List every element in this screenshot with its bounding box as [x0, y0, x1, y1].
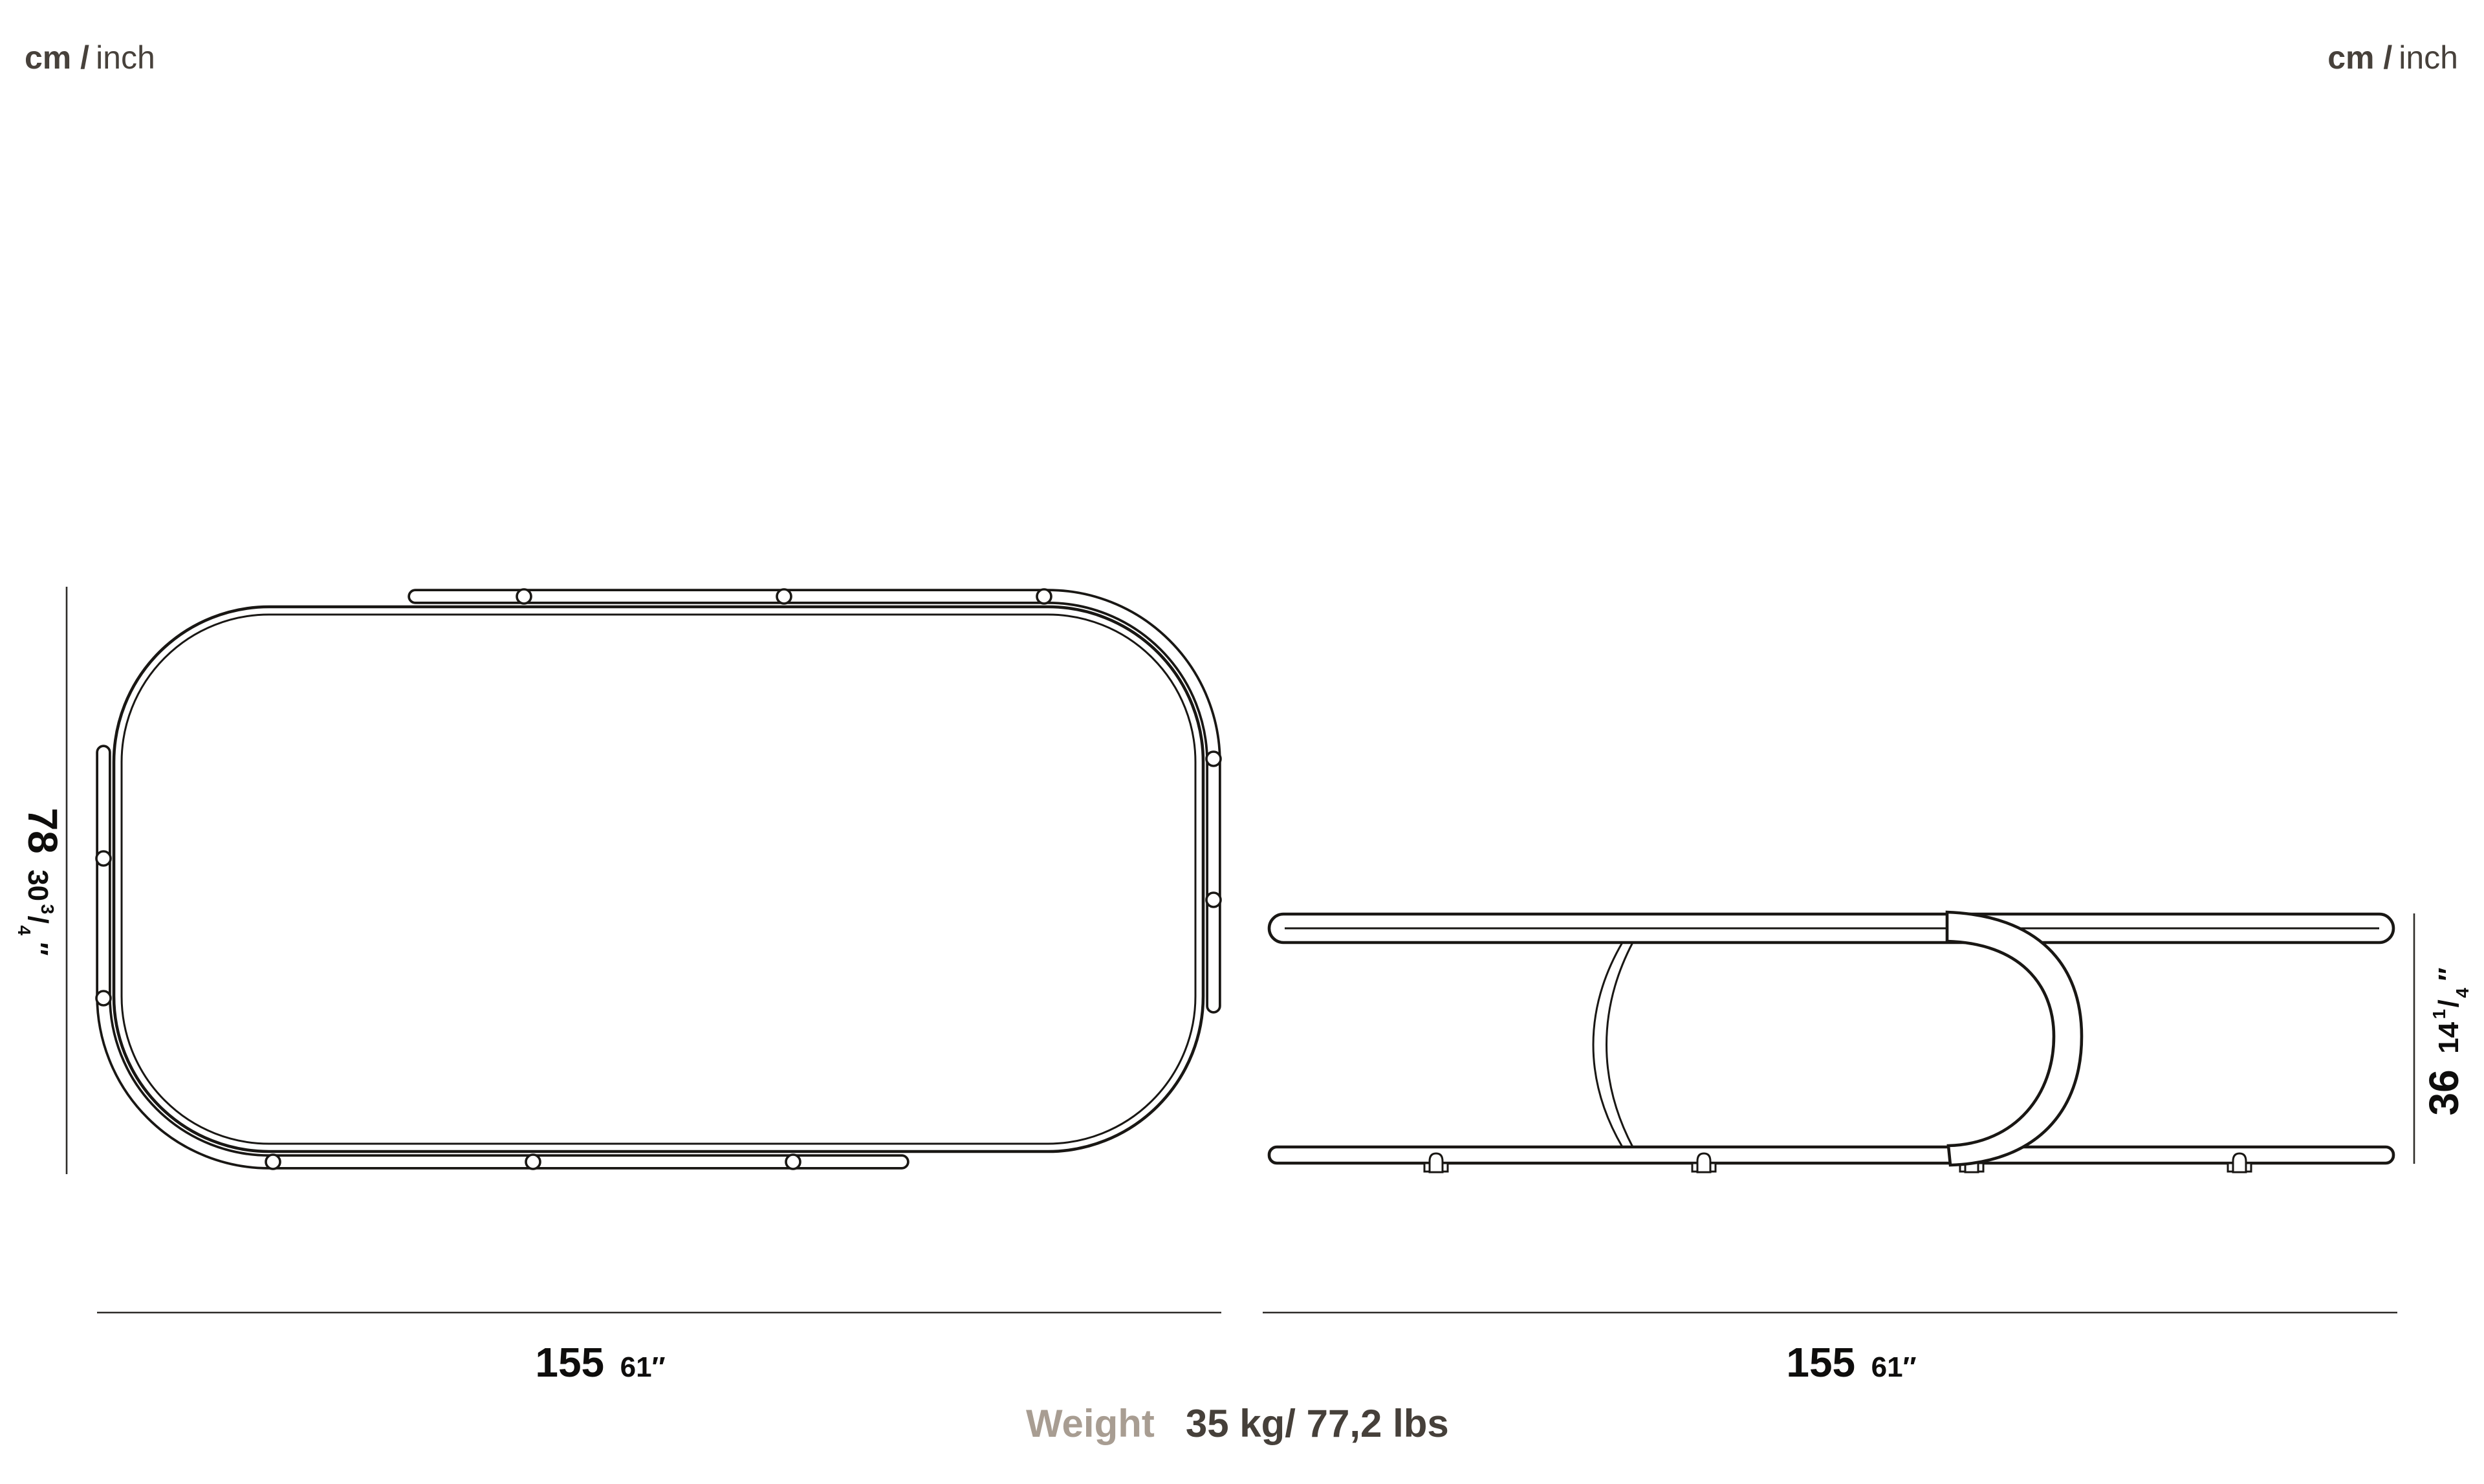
front-view-drawing: 36 14 1 / 4 ″ 155 61″	[1263, 912, 2472, 1386]
top-view-drawing: 78 30 3 / 4 ″ 155 61″	[14, 587, 1221, 1386]
screw-hole	[266, 1155, 280, 1169]
screw-hole	[777, 589, 791, 604]
loop-near-tube	[1947, 912, 2082, 1165]
screw-hole	[786, 1155, 800, 1169]
screw-hole	[96, 991, 111, 1005]
screw-hole	[96, 851, 111, 866]
screw-hole	[1206, 752, 1221, 766]
top-view-width-label: 155 61″	[535, 1339, 665, 1386]
tabletop-inner-edge	[122, 615, 1195, 1144]
tube-left-bottom	[103, 752, 902, 1162]
screw-hole	[517, 589, 531, 604]
top-view-height-label: 78 30 3 / 4 ″	[14, 808, 66, 956]
screw-hole	[1037, 589, 1051, 604]
loop-far-arc-inner	[1607, 943, 1633, 1147]
weight-label: Weight	[1026, 1402, 1155, 1445]
tube-left-bottom-core	[103, 752, 902, 1162]
screw-hole	[526, 1155, 540, 1169]
technical-drawing: 78 30 3 / 4 ″ 155 61″	[0, 0, 2484, 1484]
tube-top-right-core	[415, 596, 1214, 1006]
front-view-height-label: 36 14 1 / 4 ″	[2421, 968, 2472, 1116]
tabletop-outer-edge	[114, 607, 1203, 1151]
front-view-width-label: 155 61″	[1786, 1339, 1916, 1386]
weight-row: Weight35 kg/ 77,2 lbs	[1026, 1401, 1449, 1446]
dimension-sheet: cm /inch cm /inch	[0, 0, 2484, 1484]
weight-value: 35 kg/ 77,2 lbs	[1186, 1402, 1449, 1445]
screw-hole	[1206, 893, 1221, 907]
tube-top-right	[415, 596, 1214, 1006]
loop-far-arc-outer	[1593, 943, 1622, 1147]
